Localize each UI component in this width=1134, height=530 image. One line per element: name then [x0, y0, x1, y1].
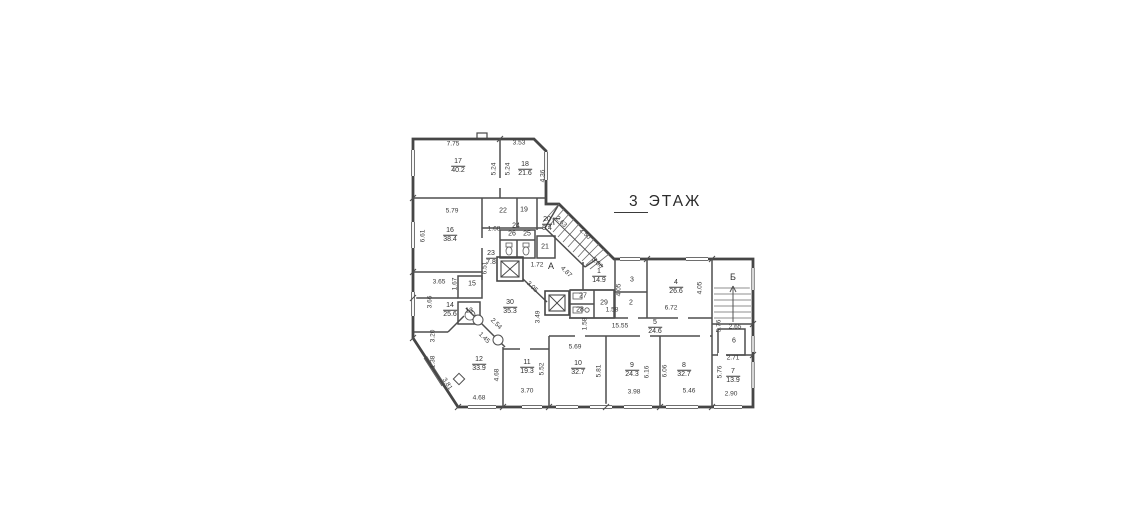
room-area: 8.4: [542, 224, 552, 232]
dimension-label: 2.90: [725, 391, 738, 398]
dimension-label: 1.58: [606, 307, 619, 314]
room-area: 21.6: [518, 169, 532, 177]
room-number-label: 21: [541, 244, 549, 251]
room-number: 17: [451, 158, 465, 167]
room-area: 32.7: [571, 368, 585, 376]
dimension-label: 3.53: [513, 140, 526, 147]
room-number: 4: [669, 279, 683, 288]
room-label: 924.3: [625, 362, 639, 379]
room-number-label: 27: [579, 293, 587, 300]
dimension-label: 6.72: [665, 305, 678, 312]
floor-title: 3ЭТАЖ: [614, 193, 701, 213]
dimension-label: 5.76: [716, 320, 723, 333]
dimension-label: 3.20: [430, 330, 437, 343]
scanned-floorplan-page: 1740.21821.61638.4208.4237.8114.9426.652…: [0, 0, 1134, 530]
room-label: 1032.7: [571, 360, 585, 377]
dimension-label: 5.24: [491, 163, 498, 176]
room-number: 20: [542, 216, 552, 225]
room-area: 32.7: [677, 370, 691, 378]
room-label: 524.6: [648, 319, 662, 336]
dimension-label: 5.24: [505, 163, 512, 176]
dimension-label: 1.38: [430, 356, 437, 369]
room-area: 19.3: [520, 367, 534, 375]
dimension-label: 15.55: [612, 323, 629, 330]
dimension-label: 7.75: [447, 141, 460, 148]
floor-number: 3: [614, 193, 648, 213]
floorplan-drawing: [0, 0, 1134, 530]
room-number-label: 2: [629, 300, 633, 307]
room-number-label: 22: [499, 208, 507, 215]
dimension-label: 6.61: [420, 230, 427, 243]
room-label: 713.9: [726, 368, 740, 385]
stairwell-letter: Б: [730, 272, 736, 282]
room-number: 18: [518, 161, 532, 170]
dimension-label: 4.68: [494, 369, 501, 382]
room-number: 10: [571, 360, 585, 369]
room-number: 16: [443, 227, 457, 236]
room-number-label: 15: [468, 281, 476, 288]
room-number: 14: [443, 302, 457, 311]
room-label: 426.6: [669, 279, 683, 296]
room-area: 14.9: [592, 276, 606, 284]
room-number-label: 19: [520, 207, 528, 214]
dimension-label: 3.49: [535, 311, 542, 324]
room-number-label: 28: [576, 307, 584, 314]
room-number-label: 24: [512, 223, 520, 230]
room-number-label: 13: [465, 308, 473, 315]
dimension-label: 1.68: [488, 226, 501, 233]
room-number: 12: [472, 356, 486, 365]
dimension-label: 5.52: [539, 363, 546, 376]
room-label: 208.4: [542, 216, 552, 233]
room-area: 33.9: [472, 364, 486, 372]
dimension-label: 3.70: [521, 388, 534, 395]
room-area: 35.3: [503, 307, 517, 315]
room-number-label: 25: [523, 231, 531, 238]
dimension-label: 1.72: [531, 262, 544, 269]
room-number-label: 6: [732, 338, 736, 345]
room-number: 30: [503, 299, 517, 308]
room-number-label: 29: [600, 300, 608, 307]
dimension-label: 5.46: [683, 388, 696, 395]
dimension-label: 4.05: [697, 282, 704, 295]
room-number: 8: [677, 362, 691, 371]
room-area: 40.2: [451, 166, 465, 174]
room-area: 26.6: [669, 287, 683, 295]
dimension-label: 5.79: [446, 208, 459, 215]
dimension-label: 4.05: [616, 284, 623, 297]
dimension-label: 5.76: [717, 366, 724, 379]
dimension-label: 6.16: [644, 366, 651, 379]
room-area: 38.4: [443, 235, 457, 243]
room-label: 1638.4: [443, 227, 457, 244]
floor-word: ЭТАЖ: [649, 193, 702, 210]
dimension-label: 3.65: [433, 279, 446, 286]
dimension-label: 3.98: [628, 389, 641, 396]
room-number: 5: [648, 319, 662, 328]
room-number: 23: [486, 250, 496, 259]
dimension-label: 4.36: [540, 170, 547, 183]
dimension-label: 2.65: [729, 324, 742, 331]
dimension-label: 3.66: [427, 296, 434, 309]
room-area: 25.6: [443, 310, 457, 318]
dimension-label: 4.68: [473, 395, 486, 402]
room-label: 1740.2: [451, 158, 465, 175]
stair-b-treads: [714, 286, 751, 322]
dimension-label: 1.58: [582, 318, 589, 331]
room-number-label: 26: [508, 231, 516, 238]
dimension-label: 6.06: [662, 365, 669, 378]
room-area: 13.9: [726, 376, 740, 384]
floorplan: 1740.21821.61638.4208.4237.8114.9426.652…: [0, 0, 1134, 530]
dimension-label: 1.67: [452, 278, 459, 291]
room-label: 1425.6: [443, 302, 457, 319]
room-label: 1821.6: [518, 161, 532, 178]
room-area: 24.3: [625, 370, 639, 378]
room-number: 11: [520, 359, 534, 368]
dimension-label: 6.51: [482, 262, 489, 275]
room-number: 9: [625, 362, 639, 371]
room-label: 3035.3: [503, 299, 517, 316]
stairwell-letter: А: [548, 261, 554, 271]
room-number: 7: [726, 368, 740, 377]
room-number-label: 3: [630, 277, 634, 284]
room-area: 24.6: [648, 327, 662, 335]
dimension-label: 5.81: [596, 365, 603, 378]
room-label: 1119.3: [520, 359, 534, 376]
room-label: 1233.9: [472, 356, 486, 373]
dimension-label: 5.69: [569, 344, 582, 351]
dimension-label: 2.71: [727, 355, 740, 362]
room-label: 832.7: [677, 362, 691, 379]
